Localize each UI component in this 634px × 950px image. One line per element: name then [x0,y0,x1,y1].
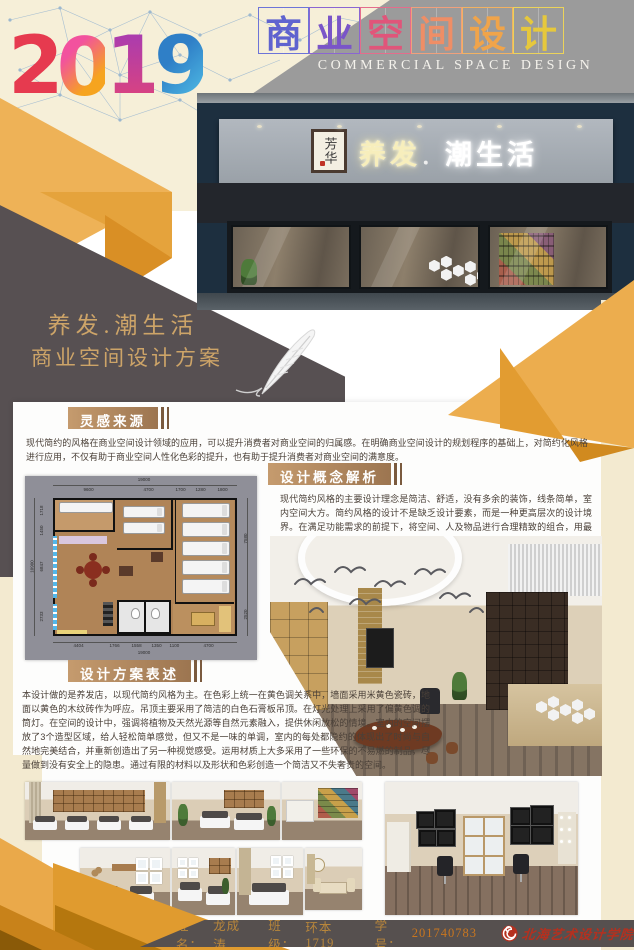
sign-dot: ． [421,147,445,169]
poster: 商 业 空 间 设 计 COMMERCIAL SPACE DESIGN 芳华 养… [0,0,634,950]
heading-bars [161,407,169,429]
dim-label: 1558 [132,644,142,649]
section-heading-statement: 设计方案表述 [68,660,202,682]
dim-label: 2733 [40,611,45,621]
dim-label: 1718 [40,505,45,515]
section-heading-inspiration: 灵感来源 [68,407,169,429]
section-heading-concept: 设计概念解析 [268,463,402,485]
sign-part-2: 潮生活 [445,140,538,170]
reception-desk [508,684,602,746]
poster-title-line2: 商业空间设计方案 [2,342,252,372]
small-table [151,552,163,562]
plant [452,672,467,700]
inspiration-body: 现代简约的风格在商业空间设计领域的应用，可以提升消费者对商业空间的归属感。在明确… [26,436,588,464]
entrance-mat [57,630,87,634]
downlight [257,125,262,128]
page-subtitle: COMMERCIAL SPACE DESIGN [283,58,628,74]
dim-label: 19000 [138,478,151,483]
silver-curtain [508,544,602,596]
dark-left-strip [0,402,13,578]
dim-label: 4700 [144,488,154,493]
storefront-roof [197,93,634,103]
dim-label: 7580 [244,533,249,543]
heading-bars [194,660,202,682]
page-title: 商 业 空 间 设 计 [258,7,564,54]
storefront-signboard: 芳华 养发．潮生活 [219,119,613,183]
title-char: 业 [309,7,360,54]
downlight [497,125,502,128]
dim-label: 4700 [204,644,214,649]
stool [446,742,458,754]
school-swirl-icon [501,925,518,942]
dim-label: 2520 [244,609,249,619]
class-value: 环本1719 [305,917,356,950]
window-strip [53,604,57,630]
dim-label: 1280 [196,488,206,493]
downlight [337,125,342,128]
floor-plan-image: 19000 9600 4700 1700 1280 1800 4404 1766… [25,476,257,660]
dining-area [173,604,234,634]
plaque-sign: 芳华 [311,129,347,173]
dim-label: 9600 [84,488,94,493]
dim-label: 1350 [152,644,162,649]
shelf-unit [103,602,113,626]
school-logo-group: 北海艺术设计学院 [501,924,634,943]
dim-label: 1700 [176,488,186,493]
reception-counter [59,536,107,544]
window-strip [53,536,57,598]
bathroom [117,600,171,634]
floor-plan-walls [53,498,237,636]
dim-label: 1100 [170,644,180,649]
window-bay [231,225,351,289]
heading-bars [394,463,402,485]
shop-sign-text: 养发．潮生活 [359,133,609,172]
year-digit: 9 [154,26,203,106]
room-topmid [117,500,173,550]
storefront-facade [197,183,634,223]
seal-mark [320,161,325,166]
year-digit: 0 [57,28,106,108]
round-table [75,552,111,588]
dim-label: 1766 [110,644,120,649]
statement-body: 本设计做的是养发店，以现代简约风格为主。在色彩上统一在黄色调关系中，墙面采用米黄… [22,688,430,772]
year-digit: 1 [105,26,154,106]
dim-label: 10900 [31,560,36,573]
heading-label: 设计概念解析 [268,463,391,485]
dim-label: 6847 [40,561,45,571]
dim-label: 19000 [138,651,151,656]
photo-salon-large [385,782,578,915]
id-value: 201740783 [412,926,477,941]
footer-bar: 姓名： 龙成涛 班级： 环本1719 学号： 201740783 北海艺术设计学… [140,920,634,947]
downlight [417,125,422,128]
school-name: 北海艺术设计学院 [521,924,634,943]
dim-label: 4404 [74,644,84,649]
bird-chandelier [290,554,510,624]
dark-artwork [366,628,394,668]
title-char: 间 [411,7,462,54]
heading-label: 设计方案表述 [68,660,191,682]
photo-dining [305,848,362,910]
title-char: 设 [462,7,513,54]
dim-label: 1450 [40,525,45,535]
plant [241,259,257,285]
title-char: 空 [360,7,411,54]
room-topleft [55,500,115,532]
dim-label: 1800 [218,488,228,493]
title-char: 计 [513,7,564,54]
year-2019: 2019 [8,26,203,106]
small-table [119,566,133,576]
heading-label: 灵感来源 [68,407,158,429]
hexagon-decor [536,696,596,730]
year-digit: 2 [8,26,57,106]
title-char: 商 [258,7,309,54]
poster-title-line1: 养发.潮生活 [28,306,218,340]
sign-part-1: 养发 [359,140,421,170]
downlight [577,125,582,128]
room-right-beds [175,500,234,604]
